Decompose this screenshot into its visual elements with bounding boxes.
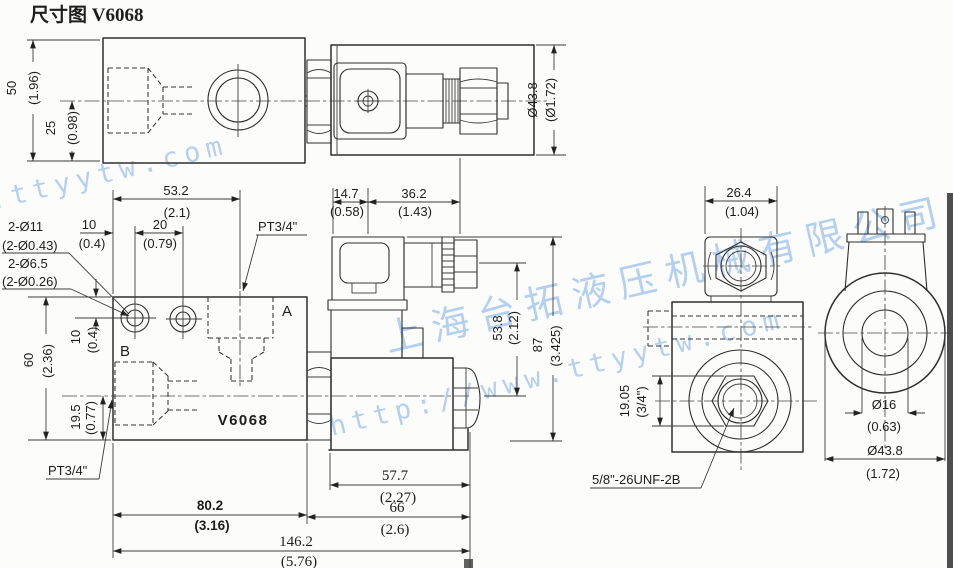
top-view-coil [331,45,534,155]
top-view [60,38,548,163]
leader-mount-holes: 2-Ø11 (2-Ø0.43) 2-Ø6.5 (2-Ø0.26) [2,219,129,316]
holes-inner-mm: 2-Ø6.5 [8,256,48,271]
front-view-port-a [208,291,273,387]
port-a-label: A [282,303,292,320]
dim-36-2-in: (1.43) [398,204,432,219]
dim-v10: 10 (0.4) [28,279,111,353]
port-b-label: B [120,343,130,360]
dim-80-2-in: (3.16) [194,518,229,533]
dim-66-in: (2.6) [381,522,410,538]
pt34-top-label: PT3/4" [258,219,298,234]
dim-14-7-in: (0.58) [330,204,364,219]
dim-57-7-mm: 57.7 [382,468,409,484]
dim-80-2: 80.2 (3.16) [113,443,307,558]
dim-10-20: 10 (0.4) 20 (0.79) [79,217,183,305]
dim-coil-od-top-mm: Ø43.8 [525,82,540,117]
dim-26-4-mm: 26.4 [726,185,751,200]
dim-16-mm: Ø16 [872,397,897,412]
dim-19-5: 19.5 (0.77) [68,396,103,440]
dim-coil-od-top: Ø43.8 (Ø1.72) [525,45,566,155]
dim-19-5-mm: 19.5 [68,404,83,429]
cartridge-thread-label: 5/8"-26UNF-2B [592,472,680,487]
dim-50-mm: 50 [4,81,19,95]
leader-pt34-top: PT3/4" [243,219,307,291]
dim-50-in: (1.96) [26,71,41,105]
dim-53-8-mm: 53.8 [490,315,505,340]
page-title: 尺寸图 V6068 [30,3,143,26]
pt34-bottom-label: PT3/4" [48,463,88,478]
top-view-tube-nut [305,60,331,143]
dimension-drawing: 上海台拓液压机械有限公司 http://www.ttyytw.com http:… [0,0,953,568]
dim-60-mm: 60 [21,353,36,367]
dim-36-2-mm: 36.2 [401,186,426,201]
holes-inner-in: (2-Ø0.26) [2,274,58,289]
dim-66-mm: 66 [390,500,406,516]
dim-height-25: 25 (0.98) [43,101,80,161]
dim-53-2-mm: 53.2 [163,183,188,198]
front-view-connector [332,237,477,300]
dim-53-2-in: (2.1) [164,205,191,220]
dim-20-in: (0.79) [143,236,177,251]
dim-146-2-mm: 146.2 [279,534,313,550]
dim-coil-od-end-mm: Ø43.8 [867,443,902,458]
dim-14-7-mm: 14.7 [333,186,358,201]
model-label: V6068 [218,412,269,429]
dim-14-7-36-2: 14.7 (0.58) 36.2 (1.43) [330,158,460,234]
dim-19-05-mm: 19.05 [617,385,632,418]
dim-coil-od-end-in: (1.72) [866,466,900,481]
holes-outer-mm: 2-Ø11 [8,219,43,234]
top-view-hidden-port [108,68,192,133]
dim-25-in: (0.98) [65,111,80,145]
dim-16-in: (0.63) [867,419,901,434]
front-view-port-b [115,362,197,425]
drawing-page: 上海台拓液压机械有限公司 http://www.ttyytw.com http:… [0,0,953,568]
dim-87-in: (3.425) [548,325,563,366]
holes-outer-in: (2-Ø0.43) [2,238,58,253]
dim-146-2-in: (5.76) [281,554,317,568]
leader-cartridge-thread: 5/8"-26UNF-2B [590,408,734,488]
dim-25-mm: 25 [43,121,58,135]
dim-87-mm: 87 [530,338,545,352]
dim-146-2: 146.2 (5.76) [113,534,470,568]
dim-20-mm: 20 [153,217,167,232]
dim-coil-od-top-in: (Ø1.72) [543,78,558,122]
dim-19-05-in: (3/4") [634,386,649,417]
dim-53-8-in: (2.12) [506,311,521,345]
dim-v10-in: (0.4) [85,327,100,354]
dim-26-4-in: (1.04) [725,204,759,219]
dim-80-2-mm: 80.2 [197,498,223,513]
dim-19-5-in: (0.77) [83,401,98,435]
dim-26-4: 26.4 (1.04) [705,185,777,234]
dim-10-in: (0.4) [79,236,106,251]
dim-v10-mm: 10 [68,330,83,344]
dim-height-50: 50 (1.96) [4,40,100,161]
dim-60-in: (2.36) [40,344,55,378]
dim-10-mm: 10 [82,217,96,232]
